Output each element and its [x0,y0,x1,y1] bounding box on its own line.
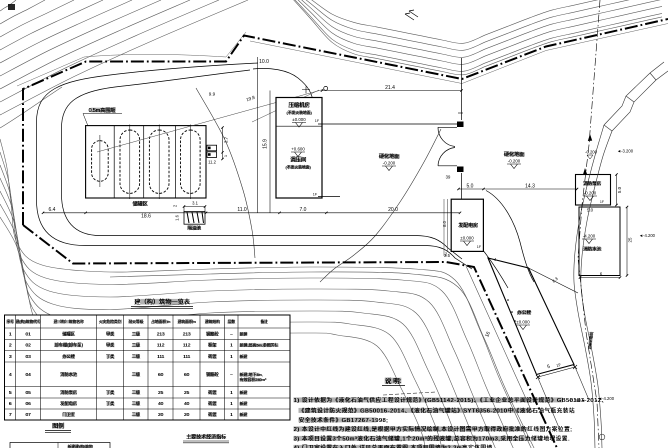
svg-text:砖混: 砖混 [208,353,217,360]
svg-text:20: 20 [158,412,164,417]
svg-text:发配电房: 发配电房 [458,222,478,229]
svg-text:213: 213 [157,331,165,336]
svg-text:5.0: 5.0 [617,186,622,193]
svg-text:消防水池: 消防水池 [60,371,78,378]
svg-text:213: 213 [183,331,191,336]
svg-text:25: 25 [628,237,633,243]
svg-text:±0.000: ±0.000 [460,236,474,241]
svg-text:1F: 1F [315,119,320,123]
svg-text:二级: 二级 [132,342,141,349]
svg-text:新建: 新建 [240,412,248,417]
svg-text:说 明:: 说 明: [385,376,402,385]
svg-text:5: 5 [9,390,12,395]
svg-text:39: 39 [446,175,451,180]
svg-text:1F: 1F [313,193,318,197]
svg-text:硬化地面: 硬化地面 [504,150,525,158]
svg-text:9.9: 9.9 [209,92,216,97]
svg-text:新建,地下4m,: 新建,地下4m, [240,372,263,377]
svg-text:2) 本设计中红线为建设红线,是根据甲方实际情况绘制,本设计: 2) 本设计中红线为建设红线,是根据甲方实际情况绘制,本设计图需甲方取得政府批准… [294,425,573,433]
svg-text:新建: 新建 [240,401,248,406]
svg-text:丁类: 丁类 [106,400,115,407]
svg-text:甲类: 甲类 [106,330,115,337]
svg-text:8.0: 8.0 [442,220,447,226]
svg-text:门卫室: 门卫室 [62,411,76,418]
svg-text:二级: 二级 [132,353,141,360]
svg-text:1.6: 1.6 [175,214,180,220]
svg-text:主要技术经济指标: 主要技术经济指标 [186,434,226,441]
svg-text:丁类: 丁类 [106,353,115,360]
svg-text:◄-3.200: ◄-3.200 [617,149,634,154]
svg-text:-0.200: -0.200 [508,159,521,164]
svg-text:调压间: 调压间 [290,156,306,164]
svg-text:40: 40 [158,401,164,406]
svg-text:新建: 新建 [240,390,248,395]
svg-text:二级: 二级 [132,400,141,407]
svg-text:火灾危险类别: 火灾危险类别 [99,319,122,324]
svg-text:消防泵房: 消防泵房 [60,389,77,396]
svg-text:办公楼: 办公楼 [517,309,532,316]
svg-text:(不发火装地面): (不发火装地面) [286,110,312,115]
svg-text:-0.200: -0.200 [584,191,597,196]
svg-text:发配电房: 发配电房 [60,400,77,407]
svg-text:60: 60 [184,372,190,377]
svg-text:3: 3 [9,354,12,359]
svg-text:《建筑设计防火规范》GB50016-2014、《液化石油气罐: 《建筑设计防火规范》GB50016-2014、《液化石油气罐站》SYT6356-… [299,407,575,415]
svg-text:图例: 图例 [52,422,64,430]
svg-text:1F: 1F [477,245,482,249]
svg-text:5.0: 5.0 [467,184,474,190]
svg-text:20: 20 [184,412,190,417]
svg-text:20.0: 20.0 [388,207,398,213]
svg-text:15.9: 15.9 [263,139,269,149]
svg-text:硬化地面: 硬化地面 [379,152,400,160]
svg-text:2: 2 [9,343,12,348]
svg-text:18.6: 18.6 [141,214,151,220]
svg-text:砖混: 砖混 [208,389,217,396]
svg-text:25: 25 [158,390,164,395]
svg-text:6.4: 6.4 [49,207,56,213]
svg-text:新建建(构)筑物: 新建建(构)筑物 [68,444,94,448]
svg-text:二级: 二级 [132,389,141,396]
svg-text:3.7: 3.7 [224,136,229,143]
svg-text:07: 07 [26,412,32,417]
svg-text:±0.000: ±0.000 [292,117,306,122]
svg-text:4: 4 [9,372,12,377]
svg-text:60: 60 [158,372,164,377]
svg-text:112: 112 [157,343,165,348]
svg-text:砖混: 砖混 [208,400,217,407]
svg-text:框架: 框架 [208,342,217,349]
svg-text:02: 02 [26,343,32,348]
svg-text:111: 111 [157,354,165,359]
svg-text:钢筋砼: 钢筋砼 [206,371,220,378]
svg-text:压缩机房: 压缩机房 [288,101,310,109]
svg-text:06: 06 [26,401,32,406]
svg-text:◄-4.200: ◄-4.200 [639,233,656,238]
svg-text:二级: 二级 [132,411,141,418]
svg-text:10.0: 10.0 [259,59,269,65]
svg-text:(不发火装地面): (不发火装地面) [285,165,311,170]
svg-text:安全技术条件》GB17267-1998;: 安全技术条件》GB17267-1998; [299,416,389,424]
svg-text:01: 01 [26,331,32,336]
svg-text:二级: 二级 [132,371,141,378]
svg-text:-0.200: -0.200 [585,150,598,155]
svg-text:卸车棚(卸车泵): 卸车棚(卸车泵) [55,342,84,349]
svg-text:-4.200: -4.200 [583,234,596,239]
svg-text:04: 04 [26,372,32,377]
svg-text:新建: 新建 [240,331,248,336]
svg-text:建筑结构: 建筑结构 [205,319,220,324]
svg-text:序号: 序号 [7,319,15,324]
svg-text:新建,层高5m,参照国标: 新建,层高5m,参照国标 [240,343,279,348]
svg-text:消防泵房: 消防泵房 [583,180,602,187]
svg-text:11.2: 11.2 [208,160,217,165]
svg-text:备注: 备注 [261,319,269,324]
svg-text:建（构）筑物一览表: 建（构）筑物一览表 [135,298,191,306]
svg-text:新建: 新建 [240,354,248,359]
svg-text:有效容积240m³: 有效容积240m³ [240,377,267,382]
svg-text:建(构)筑物代号: 建(构)筑物代号 [16,319,42,324]
svg-text:二级: 二级 [132,330,141,337]
svg-text:砖混: 砖混 [208,411,217,418]
svg-text:甲类: 甲类 [106,342,115,349]
svg-text:21.4: 21.4 [385,85,395,91]
svg-text:3.1: 3.1 [192,201,198,206]
svg-text:隔油池: 隔油池 [187,225,201,232]
svg-text:0.5m高围堰: 0.5m高围堰 [88,106,115,114]
svg-text:111: 111 [183,354,191,359]
svg-text:+0.600: +0.600 [291,147,305,152]
svg-text:储罐区: 储罐区 [132,200,148,208]
svg-text:40: 40 [184,401,190,406]
svg-text:7.0: 7.0 [300,207,307,213]
svg-text:112: 112 [183,343,191,348]
svg-text:6: 6 [9,401,12,406]
svg-text:建（构）筑物名称: 建（构）筑物名称 [54,319,85,324]
svg-text:储罐区: 储罐区 [62,330,76,337]
svg-text:11.0: 11.0 [237,207,247,213]
svg-text:1: 1 [9,331,12,336]
svg-text:占地面积 m: 占地面积 m [151,319,170,324]
svg-text:丁类: 丁类 [106,389,115,396]
svg-text:14.3: 14.3 [525,184,535,190]
svg-text:1) 设计依据为《液化石油气供应工程设计规范》(GB5114: 1) 设计依据为《液化石油气供应工程设计规范》(GB51142-2015)、《工… [294,396,608,404]
svg-text:05: 05 [26,390,32,395]
svg-text:03: 03 [26,354,32,359]
svg-text:层数: 层数 [228,319,236,324]
svg-text:-0.200: -0.200 [383,161,396,166]
svg-text:7: 7 [9,412,12,417]
svg-text:耐火等级: 耐火等级 [129,319,144,324]
svg-text:25: 25 [184,390,190,395]
svg-text:办公楼: 办公楼 [62,353,76,360]
svg-text:消防水池: 消防水池 [583,246,602,253]
svg-text:±0.000: ±0.000 [516,320,530,325]
svg-text:3) 本项目设置3个50m³液化石油气储罐,1个20m³的残: 3) 本项目设置3个50m³液化石油气储罐,1个20m³的残液罐,总容积为170… [294,435,570,443]
svg-text:钢筋砼: 钢筋砼 [206,330,220,337]
svg-text:5.0: 5.0 [587,208,594,213]
svg-text:建筑面积m: 建筑面积m [178,319,196,324]
